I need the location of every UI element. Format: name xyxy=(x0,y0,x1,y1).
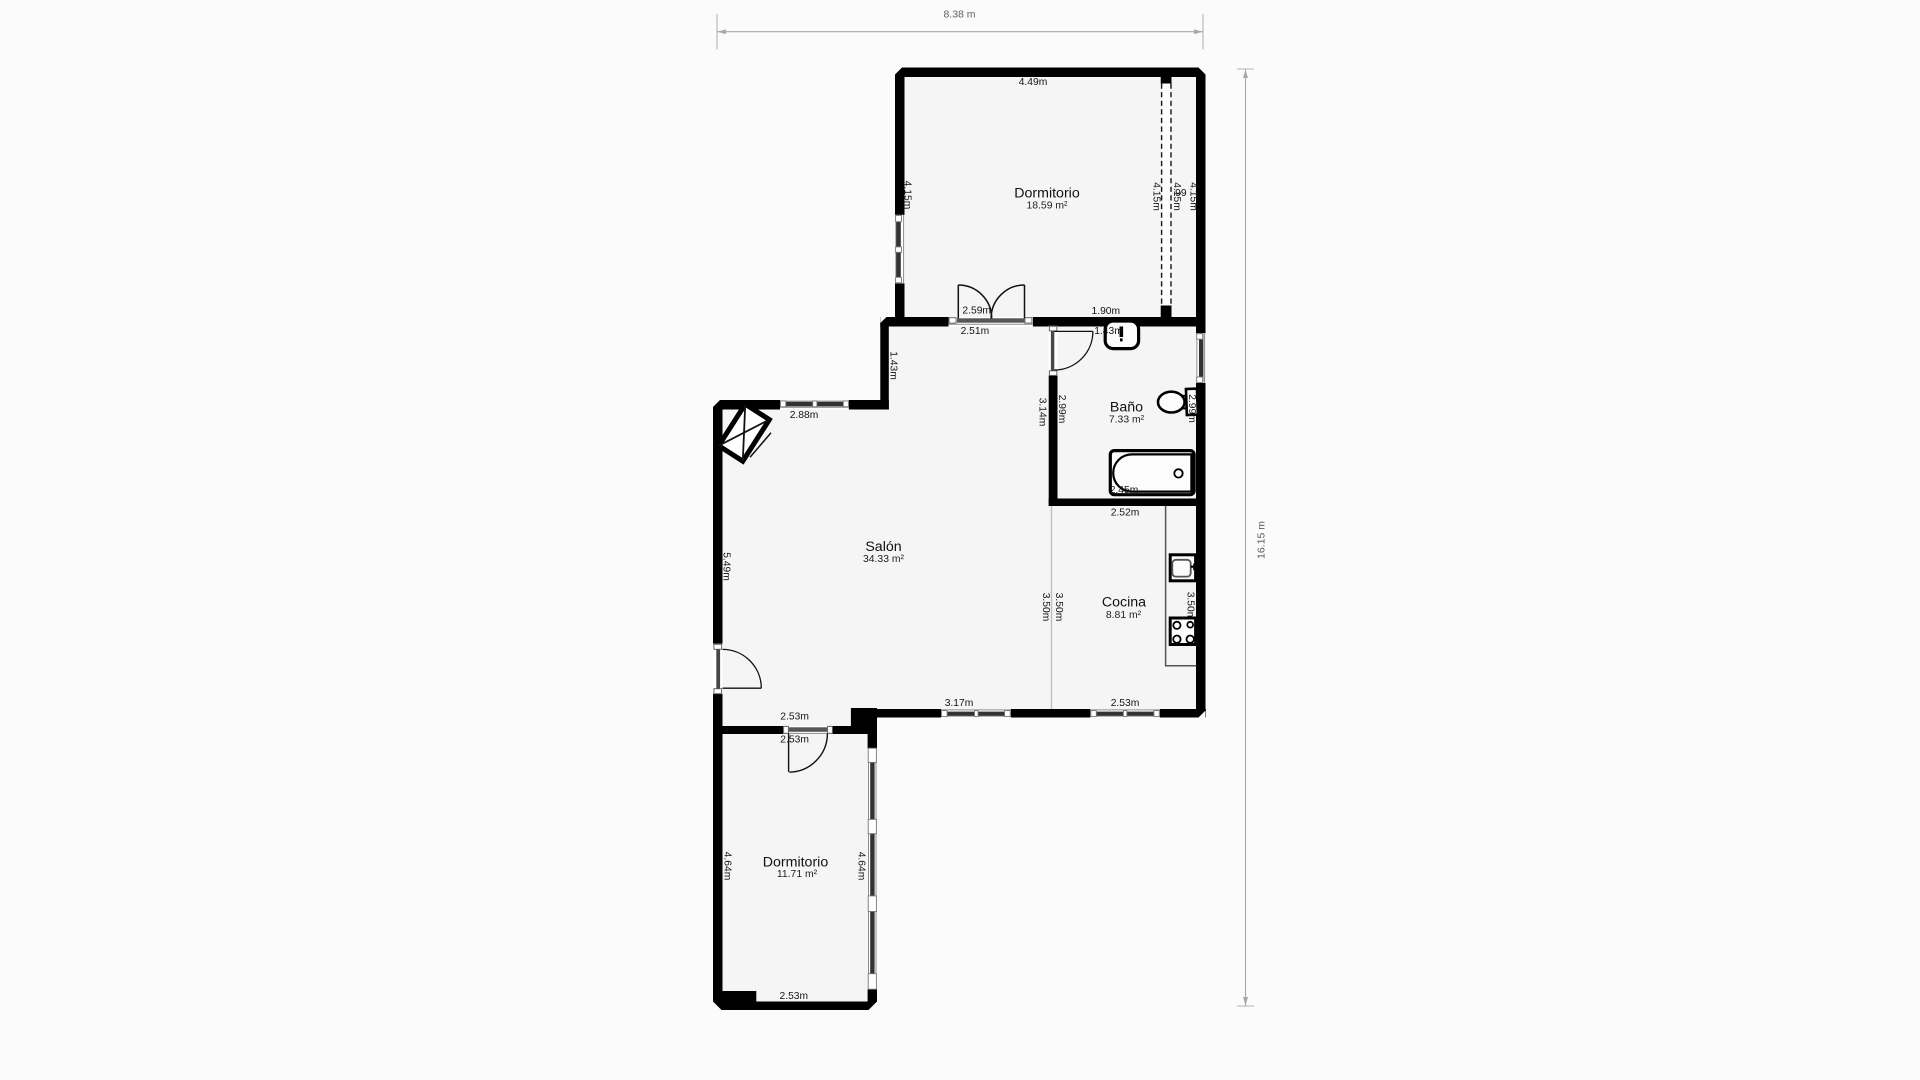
svg-text:4.64m: 4.64m xyxy=(856,852,867,881)
svg-text:Baño: Baño xyxy=(1110,400,1143,416)
svg-text:1.43m: 1.43m xyxy=(1094,326,1123,337)
svg-text:5.49m: 5.49m xyxy=(721,552,732,581)
svg-text:11.71 m²: 11.71 m² xyxy=(777,869,818,880)
svg-text:4.49m: 4.49m xyxy=(1019,77,1048,88)
svg-text:8.81 m²: 8.81 m² xyxy=(1106,610,1142,621)
svg-text:8.38 m: 8.38 m xyxy=(943,9,975,21)
svg-text:4.64m: 4.64m xyxy=(721,852,732,881)
svg-text:3.50m: 3.50m xyxy=(1040,593,1051,622)
svg-text:3.17m: 3.17m xyxy=(945,698,974,709)
svg-text:1.43m: 1.43m xyxy=(888,351,899,380)
svg-text:Dormitorio: Dormitorio xyxy=(1014,186,1080,202)
svg-text:3.14m: 3.14m xyxy=(1037,398,1048,427)
svg-text:1.90m: 1.90m xyxy=(1091,306,1120,317)
svg-text:34.33 m²: 34.33 m² xyxy=(863,554,905,565)
svg-text:3.50m: 3.50m xyxy=(1185,592,1196,621)
svg-text:2.53m: 2.53m xyxy=(1111,698,1140,709)
svg-text:4.15m: 4.15m xyxy=(1151,182,1162,211)
svg-text:99: 99 xyxy=(1175,188,1187,199)
svg-text:2.53m: 2.53m xyxy=(779,991,808,1002)
svg-text:16.15 m: 16.15 m xyxy=(1256,521,1268,559)
svg-text:2.59m: 2.59m xyxy=(962,306,991,317)
svg-text:Salón: Salón xyxy=(865,539,901,555)
svg-text:Cocina: Cocina xyxy=(1102,595,1146,611)
svg-text:2.99m: 2.99m xyxy=(1056,395,1067,424)
svg-text:4.15m: 4.15m xyxy=(1188,182,1199,211)
svg-text:2.45m: 2.45m xyxy=(1110,485,1139,496)
svg-text:7.33 m²: 7.33 m² xyxy=(1109,415,1145,426)
svg-text:3.50m: 3.50m xyxy=(1053,593,1064,622)
svg-text:2.53m: 2.53m xyxy=(780,712,809,723)
svg-text:2.88m: 2.88m xyxy=(790,410,819,421)
svg-text:2.51m: 2.51m xyxy=(961,326,990,337)
svg-text:2.99m: 2.99m xyxy=(1186,394,1197,423)
svg-text:2.53m: 2.53m xyxy=(780,735,809,746)
svg-text:18.59 m²: 18.59 m² xyxy=(1026,201,1068,212)
svg-text:4.15m: 4.15m xyxy=(901,181,912,210)
svg-text:2.52m: 2.52m xyxy=(1111,508,1140,519)
